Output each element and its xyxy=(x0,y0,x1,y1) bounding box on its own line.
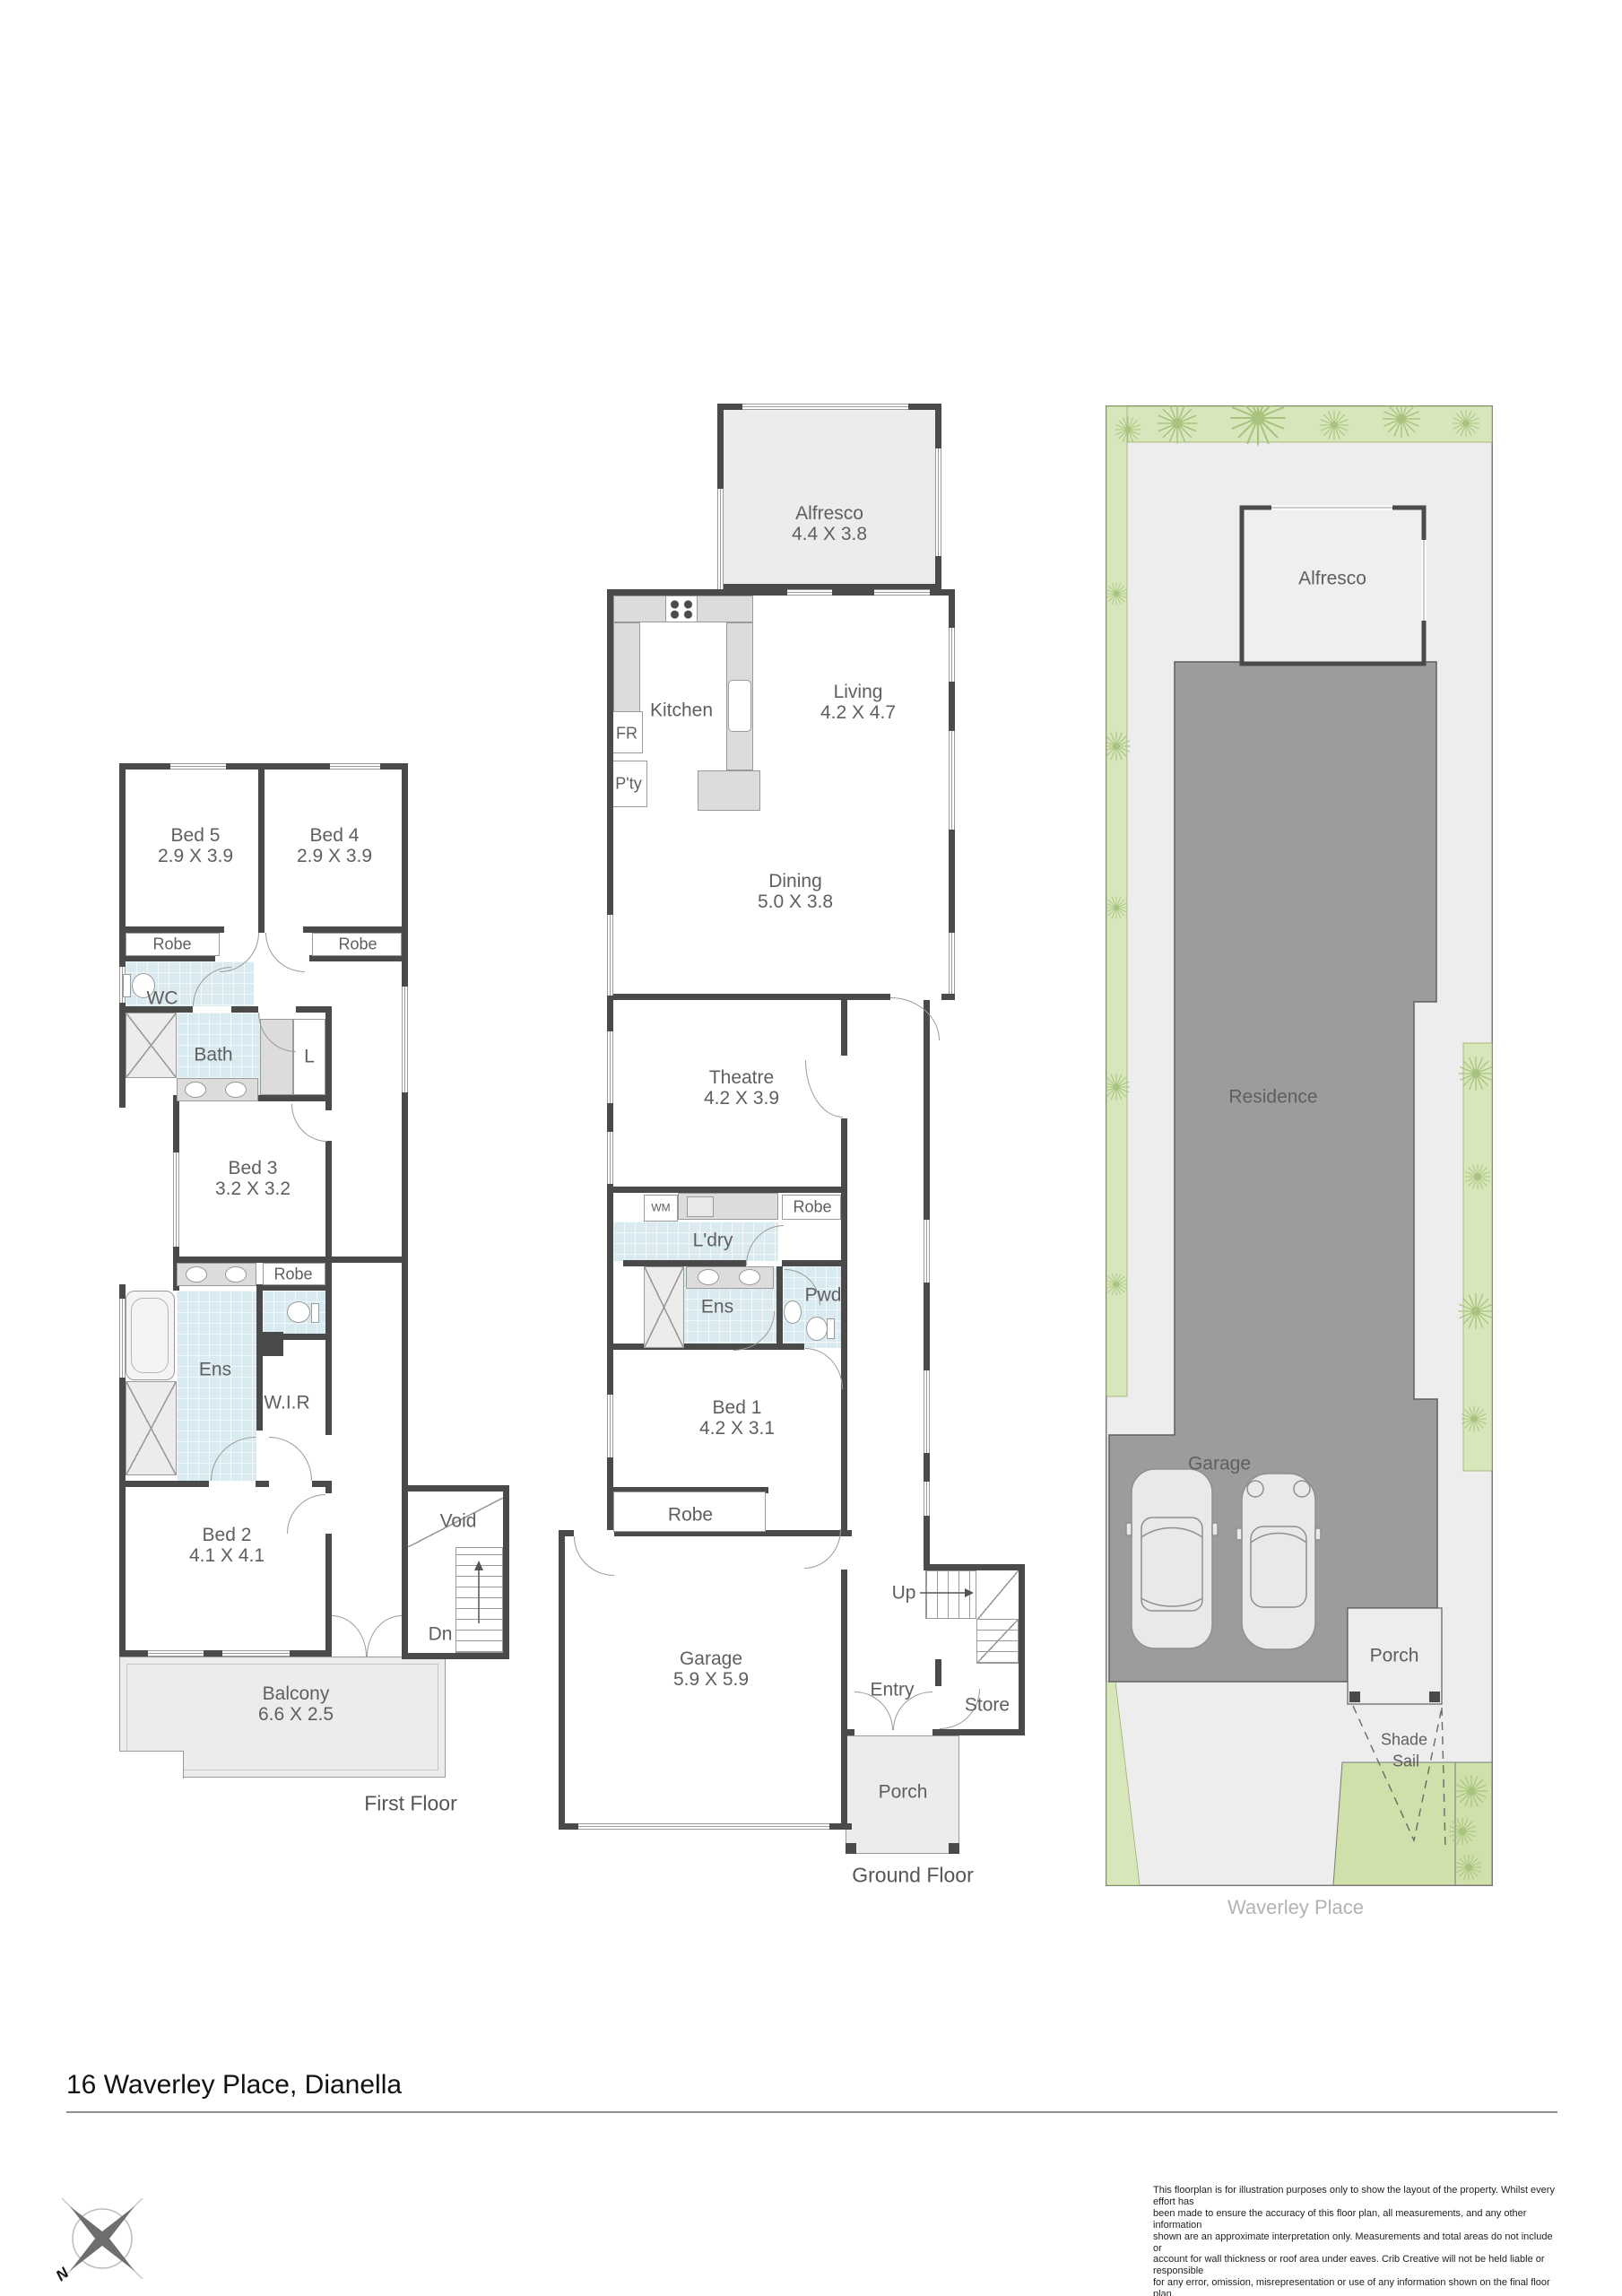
divider-line xyxy=(66,2111,1557,2113)
compass-star xyxy=(70,2206,134,2271)
disclaimer-text: This floorplan is for illustration purpo… xyxy=(1153,2185,1558,2296)
compass-north-label: N xyxy=(53,2264,73,2284)
footer: 16 Waverley Place, Dianella N This floor… xyxy=(0,0,1622,2296)
address-title: 16 Waverley Place, Dianella xyxy=(66,2070,402,2100)
floorplan-sheet: Bed 5 2.9 X 3.9 Bed 4 2.9 X 3.9 Robe Rob… xyxy=(0,0,1622,2296)
compass-icon: N xyxy=(52,2188,152,2289)
